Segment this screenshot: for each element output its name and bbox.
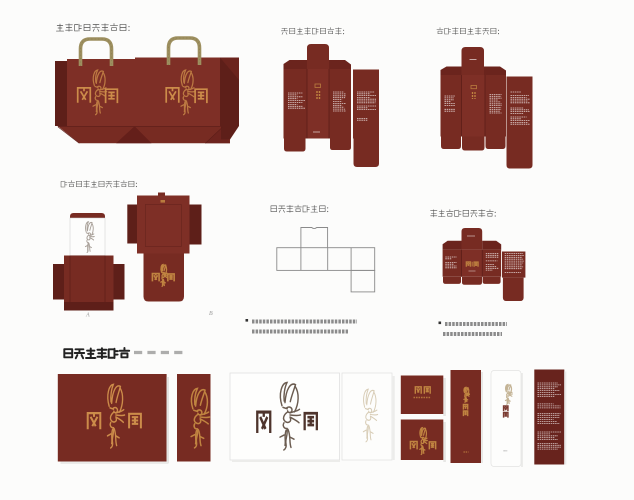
- svg-text:A: A: [85, 313, 90, 319]
- svg-text:B: B: [209, 311, 213, 317]
